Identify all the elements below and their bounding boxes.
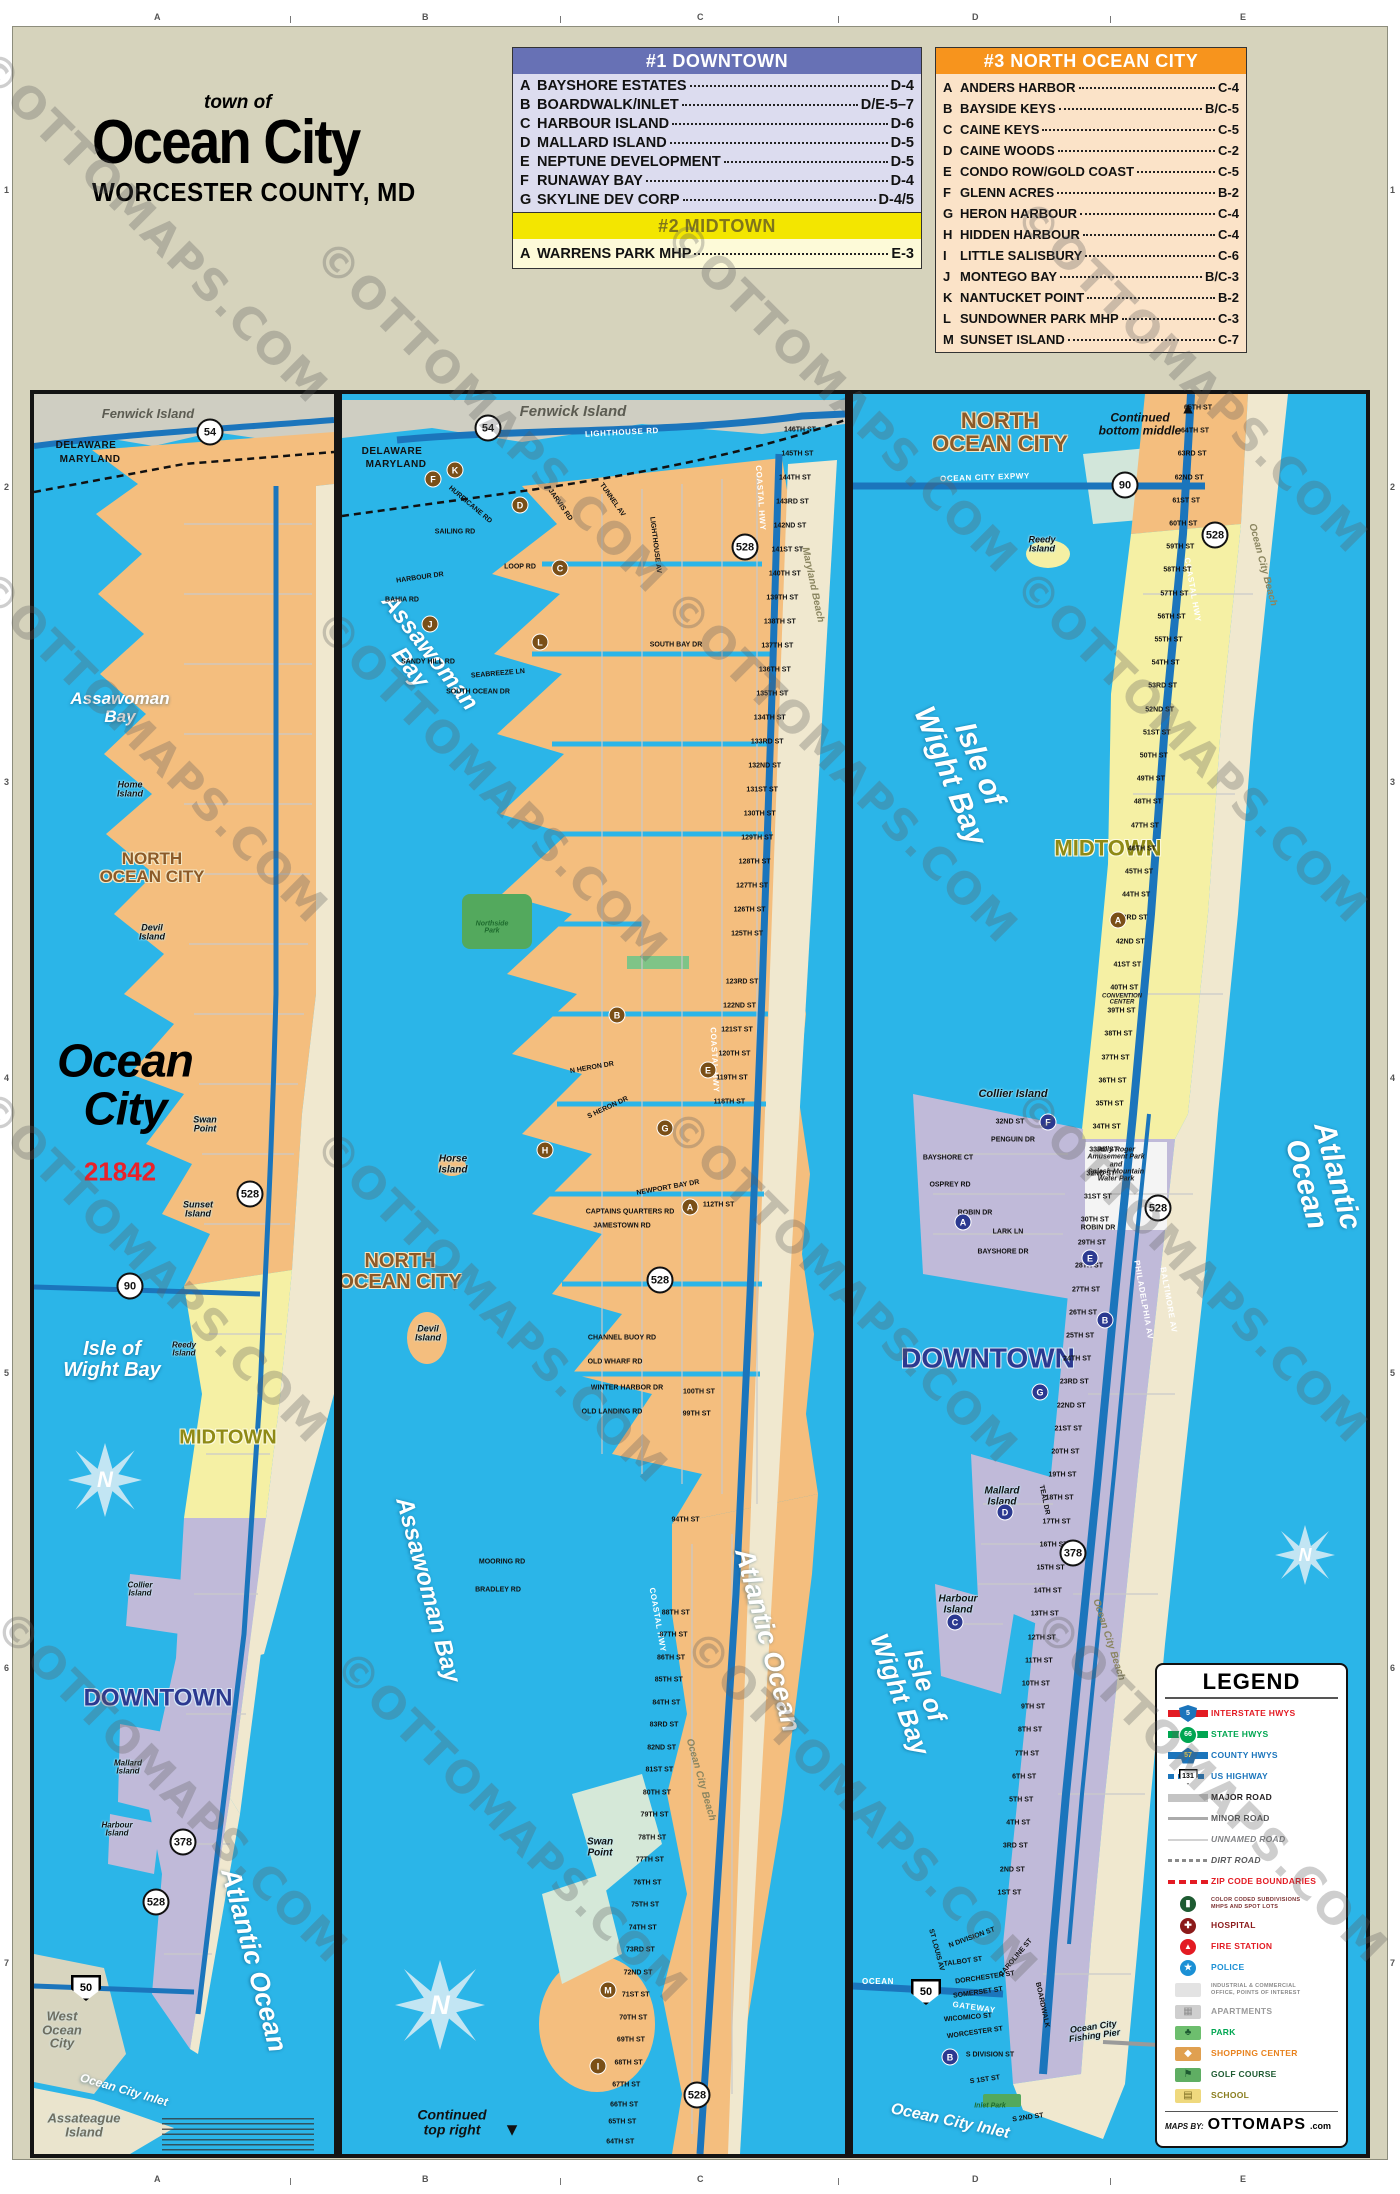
police-badge-icon: ★ xyxy=(1180,1960,1196,1976)
index-row: ECONDO ROW/GOLD COASTC-5 xyxy=(943,161,1239,182)
county-icon: 57 xyxy=(1165,1746,1211,1766)
legend-line-swatch xyxy=(1168,1817,1208,1820)
index-name: SKYLINE DEV CORP xyxy=(537,191,680,210)
dotted-leader xyxy=(1137,171,1215,173)
dotted-leader xyxy=(682,104,858,106)
panel-overview-map xyxy=(34,394,334,2154)
grid-number-right: 1 xyxy=(1390,185,1395,195)
index-page-ref: C-4 xyxy=(1218,224,1239,245)
legend-label: DIRT ROAD xyxy=(1211,1856,1261,1865)
index-letter: H xyxy=(943,224,960,245)
legend-item: ♣PARK xyxy=(1165,2022,1338,2043)
index-letter: K xyxy=(943,287,960,308)
page: { "page":{"watermark":"©OTTOMAPS.COM","g… xyxy=(0,0,1400,2194)
index-page-ref: C-2 xyxy=(1218,140,1239,161)
legend: LEGEND 5INTERSTATE HWYS66STATE HWYS57COU… xyxy=(1155,1663,1348,2148)
route-shield: 528 xyxy=(143,1889,170,1916)
legend-title: LEGEND xyxy=(1165,1669,1338,1699)
panel-north-ocean-city-map xyxy=(342,394,845,2154)
index-letter: F xyxy=(520,172,537,191)
legend-item: DIRT ROAD xyxy=(1165,1850,1338,1871)
fire-flame-icon: ▲ xyxy=(1180,1939,1196,1955)
state-icon: 66 xyxy=(1165,1725,1211,1745)
index-page-ref: D-4 xyxy=(891,77,914,96)
index-name: RUNAWAY BAY xyxy=(537,172,643,191)
dotted-leader xyxy=(1042,129,1215,131)
index-marker: B xyxy=(942,2049,959,2066)
ms-int-icon: 5 xyxy=(1179,1705,1197,1722)
route-shield: 90 xyxy=(1112,472,1139,499)
dotted-leader xyxy=(694,253,888,255)
index-letter: C xyxy=(520,115,537,134)
legend-item: ▦APARTMENTS xyxy=(1165,2001,1338,2022)
index-marker: E xyxy=(700,1062,717,1079)
industrial-swatch-icon xyxy=(1175,1983,1201,1997)
golf-icon: ⚑ xyxy=(1165,2065,1211,2085)
index-name: SUNDOWNER PARK MHP xyxy=(960,308,1119,329)
route-shield: 528 xyxy=(684,2082,711,2109)
index-marker: K xyxy=(447,462,464,479)
dotted-leader xyxy=(1080,213,1215,215)
index-downtown-rows: ABAYSHORE ESTATESD-4BBOARDWALK/INLETD/E-… xyxy=(513,74,921,212)
index-page-ref: E-3 xyxy=(891,242,914,266)
grid-letter-top: C xyxy=(697,12,704,22)
index-letter: F xyxy=(943,182,960,203)
index-letter: B xyxy=(943,98,960,119)
legend-label: UNNAMED ROAD xyxy=(1211,1835,1285,1844)
panel-divider-1 xyxy=(334,390,342,2158)
index-letter: G xyxy=(520,191,537,210)
index-marker: F xyxy=(1040,1114,1057,1131)
index-row: HHIDDEN HARBOURC-4 xyxy=(943,224,1239,245)
index-marker: M xyxy=(600,1982,617,1999)
route-shield: 528 xyxy=(1202,522,1229,549)
index-row: GHERON HARBOURC-4 xyxy=(943,203,1239,224)
index-page-ref: D-5 xyxy=(891,134,914,153)
index-page-ref: B/C-5 xyxy=(1205,98,1239,119)
index-marker: D xyxy=(997,1504,1014,1521)
index-marker: B xyxy=(1097,1312,1114,1329)
index-marker: A xyxy=(682,1199,699,1216)
legend-item: ▮COLOR CODED SUBDIVISIONS MHPS AND SPOT … xyxy=(1165,1892,1338,1915)
dotted-leader xyxy=(1085,255,1215,257)
legend-label: APARTMENTS xyxy=(1211,2007,1272,2016)
ottomaps-brand: OTTOMAPS xyxy=(1208,2116,1306,2134)
interstate-icon: 5 xyxy=(1165,1704,1211,1724)
index-page-ref: C-7 xyxy=(1218,329,1239,350)
index-row: CHARBOUR ISLANDD-6 xyxy=(520,115,914,134)
legend-label: INTERSTATE HWYS xyxy=(1211,1709,1295,1718)
industrial-icon xyxy=(1165,1980,1211,2000)
grid-letter-top: E xyxy=(1240,12,1246,22)
index-marker: L xyxy=(532,634,549,651)
dotted-leader xyxy=(1059,108,1202,110)
grid-number-left: 7 xyxy=(4,1958,9,1968)
dotted-leader xyxy=(1083,234,1215,236)
index-letter: A xyxy=(943,77,960,98)
grid-number-left: 6 xyxy=(4,1663,9,1673)
legend-label: STATE HWYS xyxy=(1211,1730,1268,1739)
compass-rose-icon: N xyxy=(1275,1525,1335,1585)
grid-number-left: 5 xyxy=(4,1368,9,1378)
index-row: ABAYSHORE ESTATESD-4 xyxy=(520,77,914,96)
legend-label: FIRE STATION xyxy=(1211,1942,1272,1951)
apartments-icon: ▦ xyxy=(1165,2002,1211,2022)
dotted-leader xyxy=(1068,339,1215,341)
minor-icon xyxy=(1165,1809,1211,1829)
route-shield: 528 xyxy=(1145,1195,1172,1222)
dirt-icon xyxy=(1165,1851,1211,1871)
legend-label: MAJOR ROAD xyxy=(1211,1793,1272,1802)
legend-line-swatch xyxy=(1168,1839,1208,1841)
index-downtown: #1 DOWNTOWN ABAYSHORE ESTATESD-4BBOARDWA… xyxy=(512,47,922,213)
index-page-ref: C-3 xyxy=(1218,308,1239,329)
compass-north-label: N xyxy=(1299,1545,1312,1566)
index-row: KNANTUCKET POINTB-2 xyxy=(943,287,1239,308)
unnamed-icon xyxy=(1165,1830,1211,1850)
dotted-leader xyxy=(683,199,876,201)
shopping-cart-icon: ◆ xyxy=(1175,2047,1201,2061)
index-page-ref: C-6 xyxy=(1218,245,1239,266)
panel-divider-2 xyxy=(845,390,853,2158)
index-marker: G xyxy=(1032,1384,1049,1401)
grid-number-left: 4 xyxy=(4,1073,9,1083)
title-block: town of Ocean City WORCESTER COUNTY, MD xyxy=(92,92,440,208)
index-name: BOARDWALK/INLET xyxy=(537,96,679,115)
subdivision-icon: ▮ xyxy=(1180,1896,1196,1912)
grid-tick xyxy=(290,16,291,23)
dotted-leader xyxy=(724,161,888,163)
index-name: HERON HARBOUR xyxy=(960,203,1077,224)
index-row: FGLENN ACRESB-2 xyxy=(943,182,1239,203)
ms-us-icon: 131 xyxy=(1179,1769,1198,1785)
index-letter: D xyxy=(520,134,537,153)
legend-item: ZIP CODE BOUNDARIES xyxy=(1165,1871,1338,1892)
index-name: MONTEGO BAY xyxy=(960,266,1057,287)
index-page-ref: C-4 xyxy=(1218,77,1239,98)
index-marker: A xyxy=(1110,912,1127,929)
disclaimer-text-block xyxy=(162,2118,314,2154)
dotted-leader xyxy=(1087,297,1215,299)
index-page-ref: C-5 xyxy=(1218,119,1239,140)
legend-item: 57COUNTY HWYS xyxy=(1165,1745,1338,1766)
index-page-ref: C-5 xyxy=(1218,161,1239,182)
legend-label: POLICE xyxy=(1211,1963,1244,1972)
legend-item: UNNAMED ROAD xyxy=(1165,1829,1338,1850)
index-north-ocean-city-title: #3 NORTH OCEAN CITY xyxy=(936,48,1246,74)
fire-icon: ▲ xyxy=(1165,1937,1211,1957)
grid-tick xyxy=(560,16,561,23)
route-shield: 378 xyxy=(170,1829,197,1856)
index-marker: G xyxy=(657,1120,674,1137)
police-icon: ★ xyxy=(1165,1958,1211,1978)
legend-line-swatch xyxy=(1168,1794,1208,1802)
grid-number-left: 2 xyxy=(4,482,9,492)
index-letter: E xyxy=(943,161,960,182)
index-name: ANDERS HARBOR xyxy=(960,77,1076,98)
index-marker: F xyxy=(425,471,442,488)
ms-state-icon: 66 xyxy=(1180,1727,1196,1743)
index-letter: G xyxy=(943,203,960,224)
index-marker: C xyxy=(947,1614,964,1631)
legend-footer: MAPS BY: OTTOMAPS .com xyxy=(1165,2111,1338,2134)
page-subtitle: WORCESTER COUNTY, MD xyxy=(92,177,416,208)
grid-letter-bottom: E xyxy=(1240,2174,1246,2184)
index-row: BBAYSIDE KEYSB/C-5 xyxy=(943,98,1239,119)
grid-tick xyxy=(560,2178,561,2185)
index-downtown-title: #1 DOWNTOWN xyxy=(513,48,921,74)
index-page-ref: D-4 xyxy=(891,172,914,191)
dotted-leader xyxy=(670,142,888,144)
index-page-ref: D-4/5 xyxy=(879,191,914,210)
index-letter: B xyxy=(520,96,537,115)
grid-number-left: 1 xyxy=(4,185,9,195)
index-name: HARBOUR ISLAND xyxy=(537,115,669,134)
school-book-icon: ▤ xyxy=(1175,2089,1201,2103)
index-name: WARRENS PARK MHP xyxy=(537,242,691,266)
legend-label: SCHOOL xyxy=(1211,2091,1249,2100)
grid-number-right: 4 xyxy=(1390,1073,1395,1083)
grid-letter-bottom: A xyxy=(154,2174,161,2184)
hospital-icon: ✚ xyxy=(1165,1916,1211,1936)
grid-number-right: 6 xyxy=(1390,1663,1395,1673)
legend-label: GOLF COURSE xyxy=(1211,2070,1277,2079)
index-name: CONDO ROW/GOLD COAST xyxy=(960,161,1134,182)
index-letter: A xyxy=(520,242,537,266)
index-page-ref: D/E-5–7 xyxy=(861,96,914,115)
index-letter: L xyxy=(943,308,960,329)
golf-flag-icon: ⚑ xyxy=(1175,2068,1201,2082)
index-name: LITTLE SALISBURY xyxy=(960,245,1082,266)
index-midtown-title: #2 MIDTOWN xyxy=(513,213,921,239)
legend-item: 66STATE HWYS xyxy=(1165,1724,1338,1745)
grid-tick xyxy=(838,16,839,23)
index-north-ocean-city-rows: AANDERS HARBORC-4BBAYSIDE KEYSB/C-5CCAIN… xyxy=(936,74,1246,352)
index-page-ref: D-6 xyxy=(891,115,914,134)
shopping-icon: ◆ xyxy=(1165,2044,1211,2064)
route-shield: 528 xyxy=(732,534,759,561)
compass-rose-icon: N xyxy=(68,1443,142,1517)
legend-label: HOSPITAL xyxy=(1211,1921,1256,1930)
route-shield: 528 xyxy=(237,1181,264,1208)
index-row: ENEPTUNE DEVELOPMENTD-5 xyxy=(520,153,914,172)
index-row: DCAINE WOODSC-2 xyxy=(943,140,1239,161)
major-icon xyxy=(1165,1788,1211,1808)
index-row: AWARRENS PARK MHPE-3 xyxy=(520,242,914,266)
legend-item: ★POLICE xyxy=(1165,1957,1338,1978)
grid-number-right: 7 xyxy=(1390,1958,1395,1968)
dotted-leader xyxy=(1057,192,1215,194)
grid-letter-top: B xyxy=(422,12,429,22)
index-row: AANDERS HARBORC-4 xyxy=(943,77,1239,98)
index-name: CAINE KEYS xyxy=(960,119,1039,140)
dotted-leader xyxy=(690,85,888,87)
index-name: CAINE WOODS xyxy=(960,140,1055,161)
index-marker: H xyxy=(537,1142,554,1159)
legend-line-swatch xyxy=(1168,1859,1208,1862)
grid-number-right: 5 xyxy=(1390,1368,1395,1378)
index-row: BBOARDWALK/INLETD/E-5–7 xyxy=(520,96,914,115)
index-row: MSUNSET ISLANDC-7 xyxy=(943,329,1239,350)
legend-label: COUNTY HWYS xyxy=(1211,1751,1278,1760)
route-shield: 90 xyxy=(117,1273,144,1300)
index-marker: C xyxy=(552,560,569,577)
zip-icon xyxy=(1165,1872,1211,1892)
dotted-leader xyxy=(1079,87,1215,89)
legend-item: 5INTERSTATE HWYS xyxy=(1165,1703,1338,1724)
index-letter: I xyxy=(943,245,960,266)
index-row: DMALLARD ISLANDD-5 xyxy=(520,134,914,153)
dotted-leader xyxy=(1058,150,1215,152)
index-letter: M xyxy=(943,329,960,350)
index-name: NANTUCKET POINT xyxy=(960,287,1084,308)
index-name: NEPTUNE DEVELOPMENT xyxy=(537,153,721,172)
index-name: HIDDEN HARBOUR xyxy=(960,224,1080,245)
index-name: BAYSIDE KEYS xyxy=(960,98,1056,119)
index-marker: D xyxy=(512,497,529,514)
subdivision-icon: ▮ xyxy=(1165,1894,1211,1914)
us-icon: 131 xyxy=(1165,1767,1211,1787)
legend-label: ZIP CODE BOUNDARIES xyxy=(1211,1877,1316,1886)
legend-label: COLOR CODED SUBDIVISIONS MHPS AND SPOT L… xyxy=(1211,1897,1300,1909)
legend-label: SHOPPING CENTER xyxy=(1211,2049,1298,2058)
compass-north-label: N xyxy=(97,1467,113,1493)
grid-tick xyxy=(1110,2178,1111,2185)
index-page-ref: C-4 xyxy=(1218,203,1239,224)
legend-line-swatch xyxy=(1168,1880,1208,1884)
index-name: BAYSHORE ESTATES xyxy=(537,77,687,96)
grid-number-right: 3 xyxy=(1390,777,1395,787)
legend-items: 5INTERSTATE HWYS66STATE HWYS57COUNTY HWY… xyxy=(1165,1703,1338,2106)
legend-item: INDUSTRIAL & COMMERCIAL OFFICE, POINTS O… xyxy=(1165,1978,1338,2001)
legend-item: ◆SHOPPING CENTER xyxy=(1165,2043,1338,2064)
index-row: GSKYLINE DEV CORPD-4/5 xyxy=(520,191,914,210)
legend-label: US HIGHWAY xyxy=(1211,1772,1268,1781)
grid-letter-top: A xyxy=(154,12,161,22)
compass-rose-icon: N xyxy=(395,1960,485,2050)
index-midtown-rows: AWARRENS PARK MHPE-3 xyxy=(513,239,921,268)
legend-item: ▤SCHOOL xyxy=(1165,2085,1338,2106)
compass-north-label: N xyxy=(430,1990,450,2021)
grid-letter-top: D xyxy=(972,12,979,22)
index-name: GLENN ACRES xyxy=(960,182,1054,203)
index-marker: A xyxy=(955,1214,972,1231)
index-marker: E xyxy=(1082,1250,1099,1267)
legend-item: ✚HOSPITAL xyxy=(1165,1915,1338,1936)
index-row: CCAINE KEYSC-5 xyxy=(943,119,1239,140)
park-tree-icon: ♣ xyxy=(1175,2026,1201,2040)
school-icon: ▤ xyxy=(1165,2086,1211,2106)
park-icon: ♣ xyxy=(1165,2023,1211,2043)
index-page-ref: D-5 xyxy=(891,153,914,172)
index-letter: C xyxy=(943,119,960,140)
index-page-ref: B/C-3 xyxy=(1205,266,1239,287)
index-row: JMONTEGO BAYB/C-3 xyxy=(943,266,1239,287)
legend-label: PARK xyxy=(1211,2028,1236,2037)
index-marker: I xyxy=(590,2058,607,2075)
index-north-ocean-city: #3 NORTH OCEAN CITY AANDERS HARBORC-4BBA… xyxy=(935,47,1247,353)
legend-label: INDUSTRIAL & COMMERCIAL OFFICE, POINTS O… xyxy=(1211,1983,1300,1995)
page-title: Ocean City xyxy=(92,114,398,173)
grid-tick xyxy=(838,2178,839,2185)
legend-item: ▲FIRE STATION xyxy=(1165,1936,1338,1957)
grid-tick xyxy=(290,2178,291,2185)
index-page-ref: B-2 xyxy=(1218,287,1239,308)
maps-by-label: MAPS BY: xyxy=(1165,2122,1204,2131)
index-name: SUNSET ISLAND xyxy=(960,329,1065,350)
index-row: ILITTLE SALISBURYC-6 xyxy=(943,245,1239,266)
index-midtown: #2 MIDTOWN AWARRENS PARK MHPE-3 xyxy=(512,212,922,269)
dotted-leader xyxy=(1060,276,1202,278)
index-name: MALLARD ISLAND xyxy=(537,134,667,153)
ottomaps-tld: .com xyxy=(1310,2121,1331,2131)
grid-number-right: 2 xyxy=(1390,482,1395,492)
dotted-leader xyxy=(1122,318,1215,320)
dotted-leader xyxy=(646,180,888,182)
index-marker: B xyxy=(609,1007,626,1024)
grid-letter-bottom: C xyxy=(697,2174,704,2184)
index-page-ref: B-2 xyxy=(1218,182,1239,203)
grid-number-left: 3 xyxy=(4,777,9,787)
index-letter: E xyxy=(520,153,537,172)
dotted-leader xyxy=(672,123,888,125)
index-marker: J xyxy=(422,616,439,633)
hospital-cross-icon: ✚ xyxy=(1180,1918,1196,1934)
route-shield: 378 xyxy=(1060,1540,1087,1567)
apartments-building-icon: ▦ xyxy=(1175,2005,1201,2019)
index-letter: D xyxy=(943,140,960,161)
grid-tick xyxy=(1110,16,1111,23)
grid-letter-bottom: D xyxy=(972,2174,979,2184)
index-row: LSUNDOWNER PARK MHPC-3 xyxy=(943,308,1239,329)
legend-item: 131US HIGHWAY xyxy=(1165,1766,1338,1787)
legend-item: ⚑GOLF COURSE xyxy=(1165,2064,1338,2085)
legend-item: MAJOR ROAD xyxy=(1165,1787,1338,1808)
index-row: FRUNAWAY BAYD-4 xyxy=(520,172,914,191)
route-shield: 54 xyxy=(197,419,224,446)
legend-item: MINOR ROAD xyxy=(1165,1808,1338,1829)
index-letter: A xyxy=(520,77,537,96)
ms-county-icon: 57 xyxy=(1180,1748,1197,1764)
index-letter: J xyxy=(943,266,960,287)
grid-letter-bottom: B xyxy=(422,2174,429,2184)
route-shield: 528 xyxy=(647,1267,674,1294)
legend-label: MINOR ROAD xyxy=(1211,1814,1270,1823)
route-shield: 54 xyxy=(475,415,502,442)
